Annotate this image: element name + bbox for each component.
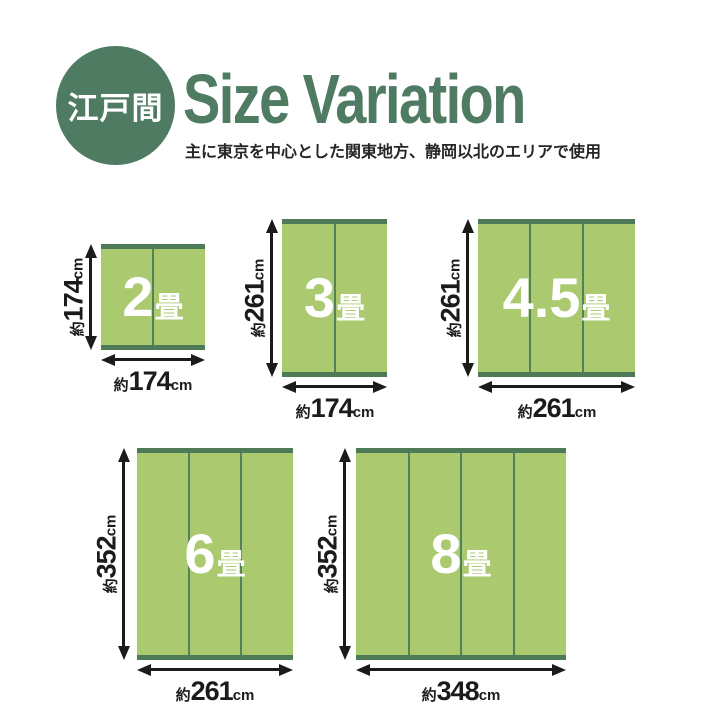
width-label: 約261cm	[176, 678, 255, 705]
width-arrow	[137, 663, 293, 677]
height-label: 約261cm	[438, 259, 465, 338]
mat-size-label: 3畳	[282, 219, 387, 377]
width-arrow	[282, 380, 387, 394]
mat-size-label: 2畳	[101, 244, 205, 350]
tatami-mat-2jo: 2畳	[101, 244, 205, 350]
width-arrow	[356, 663, 566, 677]
height-label: 約174cm	[61, 258, 88, 337]
width-label: 約174cm	[296, 395, 375, 422]
edoma-badge-label: 江戸間	[68, 83, 164, 128]
mat-size-label: 6畳	[137, 448, 293, 660]
width-label: 約261cm	[518, 395, 597, 422]
page-subtitle: 主に東京を中心とした関東地方、静岡以北のエリアで使用	[185, 138, 601, 162]
tatami-mat-6jo: 6畳	[137, 448, 293, 660]
page-title: Size Variation	[183, 64, 525, 134]
size-variation-infographic: 江戸間 Size Variation 主に東京を中心とした関東地方、静岡以北のエ…	[0, 0, 720, 720]
height-label: 約352cm	[315, 515, 342, 594]
edoma-badge: 江戸間	[56, 46, 175, 165]
mat-size-label: 8畳	[356, 448, 566, 660]
height-label: 約261cm	[242, 259, 269, 338]
tatami-mat-8jo: 8畳	[356, 448, 566, 660]
width-label: 約174cm	[114, 368, 193, 395]
mat-size-label: 4.5畳	[478, 219, 635, 377]
width-label: 約348cm	[422, 678, 501, 705]
height-label: 約352cm	[94, 515, 121, 594]
width-arrow	[101, 353, 205, 367]
tatami-mat-3jo: 3畳	[282, 219, 387, 377]
width-arrow	[478, 380, 635, 394]
tatami-mat-4-5jo: 4.5畳	[478, 219, 635, 377]
